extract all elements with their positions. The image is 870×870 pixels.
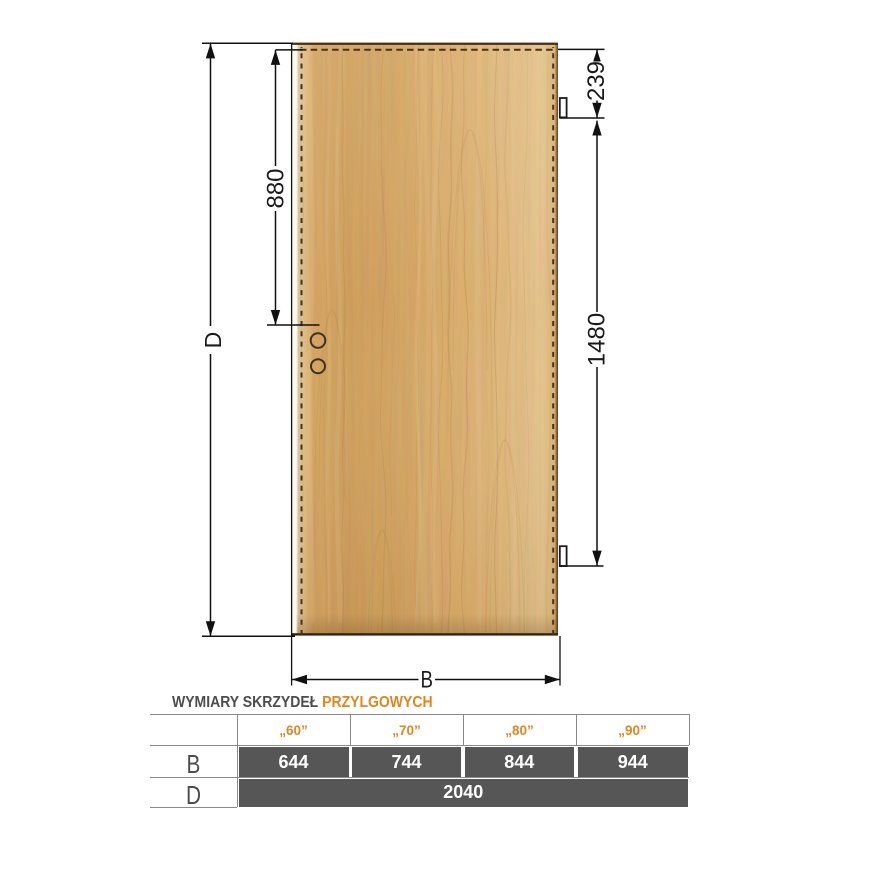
svg-text:B: B	[421, 666, 433, 690]
svg-text:239: 239	[583, 61, 610, 101]
svg-text:D: D	[200, 332, 226, 349]
svg-text:1480: 1480	[584, 313, 611, 366]
svg-text:880: 880	[263, 168, 290, 208]
